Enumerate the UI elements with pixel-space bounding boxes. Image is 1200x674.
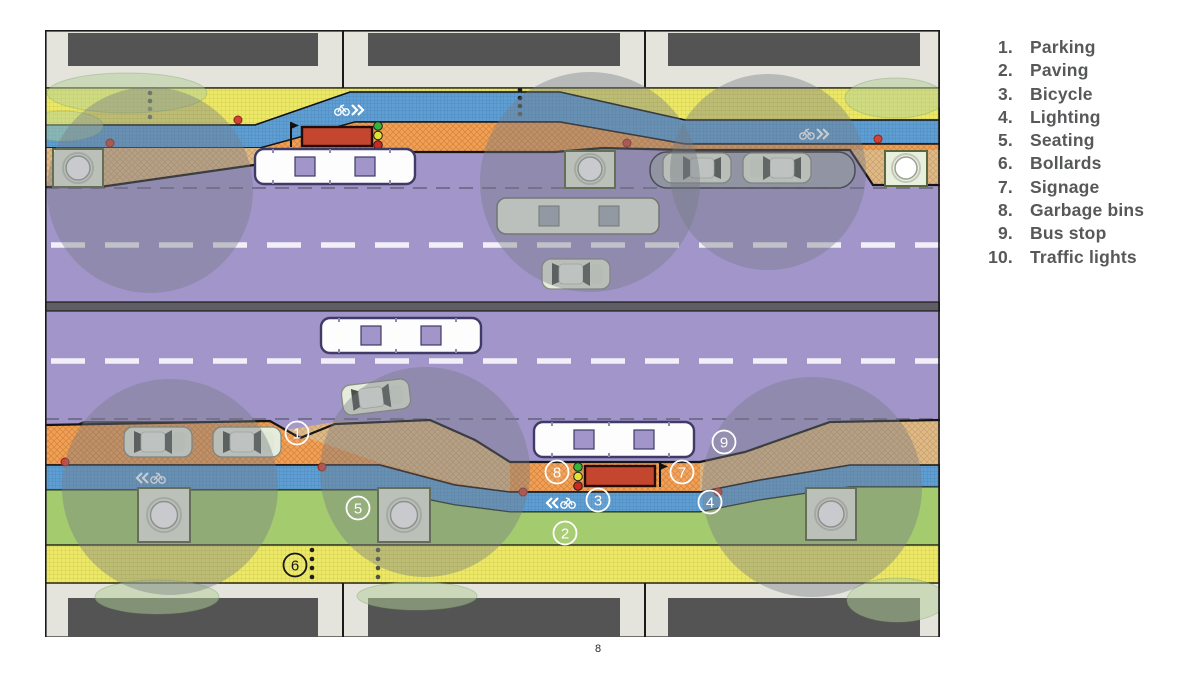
- legend: 1.Parking 2.Paving 3.Bicycle 4.Lighting …: [985, 37, 1190, 270]
- svg-text:3: 3: [594, 493, 602, 510]
- legend-item: 3.Bicycle: [985, 84, 1190, 107]
- legend-item-label: Bollards: [1030, 153, 1102, 174]
- svg-text:9: 9: [720, 435, 728, 452]
- legend-item-number: 8.: [985, 200, 1013, 221]
- svg-text:8: 8: [553, 465, 561, 482]
- legend-item-label: Paving: [1030, 60, 1089, 81]
- legend-item-number: 2.: [985, 60, 1013, 81]
- legend-item-number: 6.: [985, 153, 1013, 174]
- svg-text:5: 5: [354, 501, 362, 518]
- annotation-badge-8: 8: [546, 461, 569, 484]
- legend-item-number: 1.: [985, 37, 1013, 58]
- bus-icon: [534, 422, 694, 457]
- annotation-badge-1: 1: [286, 422, 309, 445]
- legend-item-number: 3.: [985, 84, 1013, 105]
- legend-item-number: 7.: [985, 177, 1013, 198]
- tree-planter-icon: [885, 151, 927, 186]
- legend-item-label: Signage: [1030, 177, 1099, 198]
- annotation-badge-3: 3: [587, 489, 610, 512]
- legend-item-number: 9.: [985, 223, 1013, 244]
- svg-text:4: 4: [706, 495, 714, 512]
- building-footprint: [368, 33, 620, 66]
- annotation-badge-2: 2: [554, 522, 577, 545]
- legend-item: 4.Lighting: [985, 107, 1190, 130]
- legend-item: 10.Traffic lights: [985, 247, 1190, 270]
- page-number: 8: [558, 643, 638, 655]
- svg-text:1: 1: [293, 426, 301, 443]
- traffic-light-icon: [374, 122, 383, 150]
- legend-item-number: 5.: [985, 130, 1013, 151]
- building-footprint: [68, 33, 318, 66]
- legend-item-label: Seating: [1030, 130, 1095, 151]
- bus-shelter-icon: [585, 466, 655, 486]
- svg-text:2: 2: [561, 526, 569, 543]
- svg-text:6: 6: [291, 558, 299, 575]
- legend-item: 5.Seating: [985, 130, 1190, 153]
- annotation-badge-6: 6: [284, 554, 307, 577]
- legend-item-number: 4.: [985, 107, 1013, 128]
- legend-item: 2.Paving: [985, 60, 1190, 83]
- legend-item: 8.Garbage bins: [985, 200, 1190, 223]
- legend-item-label: Parking: [1030, 37, 1096, 58]
- legend-item-label: Lighting: [1030, 107, 1101, 128]
- annotation-badge-7: 7: [671, 461, 694, 484]
- annotation-badge-9: 9: [713, 431, 736, 454]
- legend-item-label: Traffic lights: [1030, 247, 1137, 268]
- bus-shelter-icon: [302, 127, 372, 146]
- legend-item-label: Garbage bins: [1030, 200, 1144, 221]
- street-plan-drawing: 1 2 3 4 5 6 7 8 9: [45, 30, 940, 637]
- bus-icon: [255, 149, 415, 184]
- legend-item: 1.Parking: [985, 37, 1190, 60]
- traffic-light-icon: [574, 463, 583, 491]
- bus-icon: [321, 318, 481, 353]
- legend-item: 9.Bus stop: [985, 223, 1190, 246]
- median-strip: [45, 302, 940, 311]
- legend-item: 6.Bollards: [985, 153, 1190, 176]
- legend-item-label: Bicycle: [1030, 84, 1093, 105]
- street-plan: 1 2 3 4 5 6 7 8 9: [45, 30, 940, 637]
- svg-text:7: 7: [678, 465, 686, 482]
- annotation-badge-4: 4: [699, 491, 722, 514]
- legend-item-label: Bus stop: [1030, 223, 1106, 244]
- annotation-badge-5: 5: [347, 497, 370, 520]
- building-footprint: [668, 33, 920, 66]
- legend-item-number: 10.: [985, 247, 1013, 268]
- legend-item: 7.Signage: [985, 177, 1190, 200]
